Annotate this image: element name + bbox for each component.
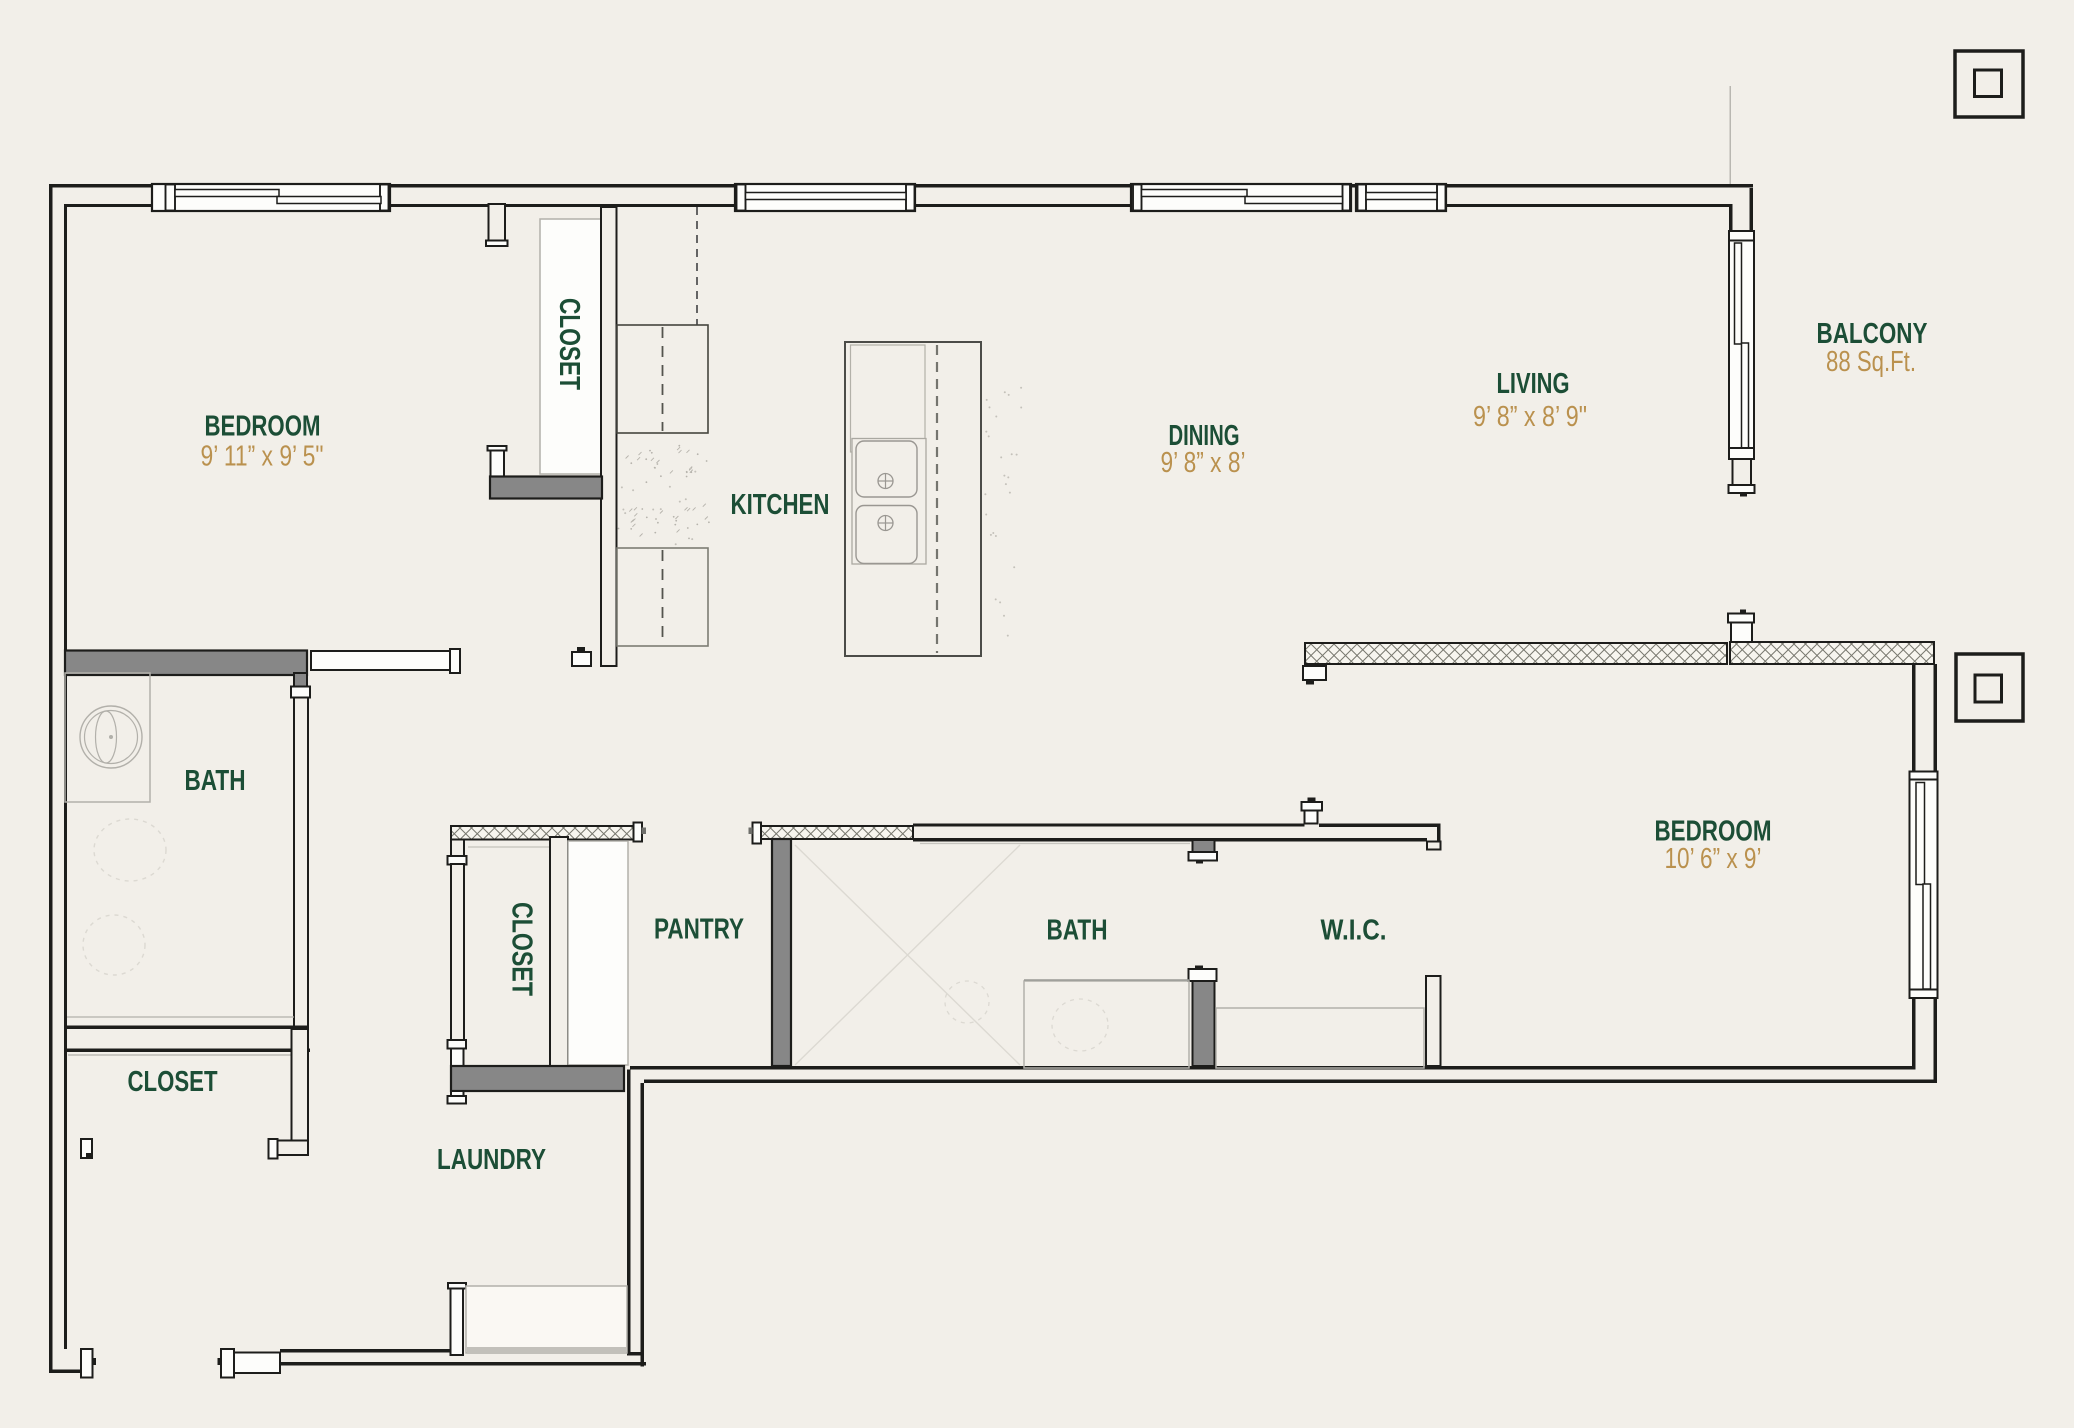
svg-text:PANTRY: PANTRY bbox=[654, 914, 744, 946]
svg-text:BATH: BATH bbox=[1047, 915, 1108, 947]
svg-text:W.I.C.: W.I.C. bbox=[1321, 915, 1387, 947]
svg-text:9’ 11” x 9’ 5": 9’ 11” x 9’ 5" bbox=[201, 441, 324, 473]
svg-text:KITCHEN: KITCHEN bbox=[731, 489, 830, 521]
svg-text:10’ 6” x 9’: 10’ 6” x 9’ bbox=[1665, 843, 1762, 875]
svg-text:LAUNDRY: LAUNDRY bbox=[437, 1144, 546, 1176]
svg-text:LIVING: LIVING bbox=[1497, 368, 1570, 400]
svg-text:BATH: BATH bbox=[185, 765, 246, 797]
svg-text:9’ 8” x 8’ 9": 9’ 8” x 8’ 9" bbox=[1473, 401, 1587, 433]
svg-text:CLOSET: CLOSET bbox=[553, 298, 585, 390]
svg-text:9’ 8” x 8’: 9’ 8” x 8’ bbox=[1161, 447, 1246, 479]
svg-text:BEDROOM: BEDROOM bbox=[205, 411, 321, 443]
svg-text:CLOSET: CLOSET bbox=[128, 1066, 218, 1098]
svg-text:CLOSET: CLOSET bbox=[506, 902, 538, 996]
svg-text:88 Sq.Ft.: 88 Sq.Ft. bbox=[1826, 346, 1916, 378]
